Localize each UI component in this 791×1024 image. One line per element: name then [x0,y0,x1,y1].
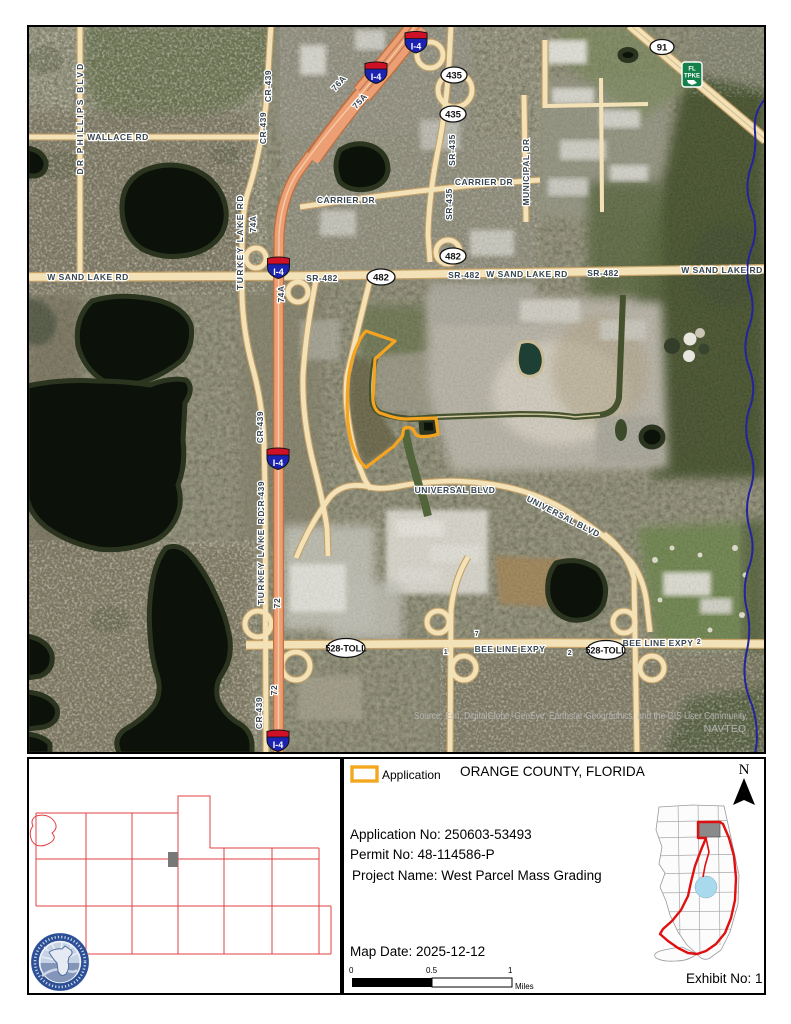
svg-text:W SAND LAKE RD: W SAND LAKE RD [681,265,763,275]
svg-text:CR-439: CR-439 [256,481,266,513]
svg-text:1: 1 [508,966,513,975]
svg-text:91: 91 [657,43,668,54]
svg-text:CARRIER DR: CARRIER DR [455,177,513,187]
svg-text:Exhibit No: 1: Exhibit No: 1 [686,971,763,986]
svg-text:2: 2 [697,639,701,646]
svg-text:72: 72 [269,685,279,695]
svg-text:Source: Esri, DigitalGlobe, Ge: Source: Esri, DigitalGlobe, GeoEye, Eart… [414,710,748,722]
svg-text:CR-439: CR-439 [254,697,264,729]
svg-text:SR-482: SR-482 [587,268,619,278]
svg-text:SR-482: SR-482 [448,270,480,280]
svg-text:0: 0 [349,966,354,975]
svg-text:74A: 74A [276,285,286,302]
svg-text:TURKEY LAKE RD: TURKEY LAKE RD [256,509,266,605]
svg-text:482: 482 [373,273,389,284]
svg-text:UNIVERSAL BLVD: UNIVERSAL BLVD [415,485,496,495]
svg-text:TPKE: TPKE [684,74,700,80]
svg-text:W SAND LAKE RD: W SAND LAKE RD [47,272,129,282]
svg-text:435: 435 [445,110,462,121]
svg-text:74A: 74A [248,215,258,232]
svg-text:1: 1 [444,649,448,656]
svg-text:Map Date: 2025-12-12: Map Date: 2025-12-12 [350,944,485,959]
svg-text:CR-439: CR-439 [263,70,273,102]
svg-text:ORANGE COUNTY, FLORIDA: ORANGE COUNTY, FLORIDA [460,764,646,779]
svg-text:N: N [739,762,750,778]
svg-text:FL: FL [688,67,696,73]
svg-text:DR PHILLIPS BLVD: DR PHILLIPS BLVD [75,62,85,175]
svg-text:482: 482 [445,252,461,263]
svg-text:7: 7 [475,631,479,638]
svg-text:Miles: Miles [515,982,534,991]
svg-text:TURKEY LAKE RD: TURKEY LAKE RD [235,194,245,290]
svg-text:Application: Application [382,768,441,782]
svg-text:Application No: 250603-53493: Application No: 250603-53493 [350,827,532,842]
svg-text:SR-482: SR-482 [306,273,338,283]
svg-text:528-TOLL: 528-TOLL [585,646,627,656]
svg-text:SR-435: SR-435 [447,134,457,166]
svg-text:72: 72 [272,598,282,608]
svg-text:528-TOLL: 528-TOLL [325,644,367,654]
svg-text:2: 2 [568,650,572,657]
svg-text:0.5: 0.5 [426,966,438,975]
svg-text:CARRIER DR: CARRIER DR [317,195,375,205]
svg-text:MUNICIPAL DR: MUNICIPAL DR [521,138,531,205]
svg-text:W SAND LAKE RD: W SAND LAKE RD [486,269,568,279]
svg-text:BEE LINE EXPY: BEE LINE EXPY [475,644,546,654]
svg-text:SR-435: SR-435 [444,188,454,220]
svg-text:435: 435 [446,71,463,82]
svg-text:NAVTEQ: NAVTEQ [704,723,746,735]
svg-text:CR-439: CR-439 [255,411,265,443]
svg-text:Permit No: 48-114586-P: Permit No: 48-114586-P [350,847,495,862]
svg-text:CR-439: CR-439 [258,112,268,144]
svg-text:BEE LINE EXPY: BEE LINE EXPY [623,638,694,648]
svg-text:Project Name: West Parcel Mass: Project Name: West Parcel Mass Grading [352,868,602,883]
svg-text:WALLACE RD: WALLACE RD [87,132,149,142]
